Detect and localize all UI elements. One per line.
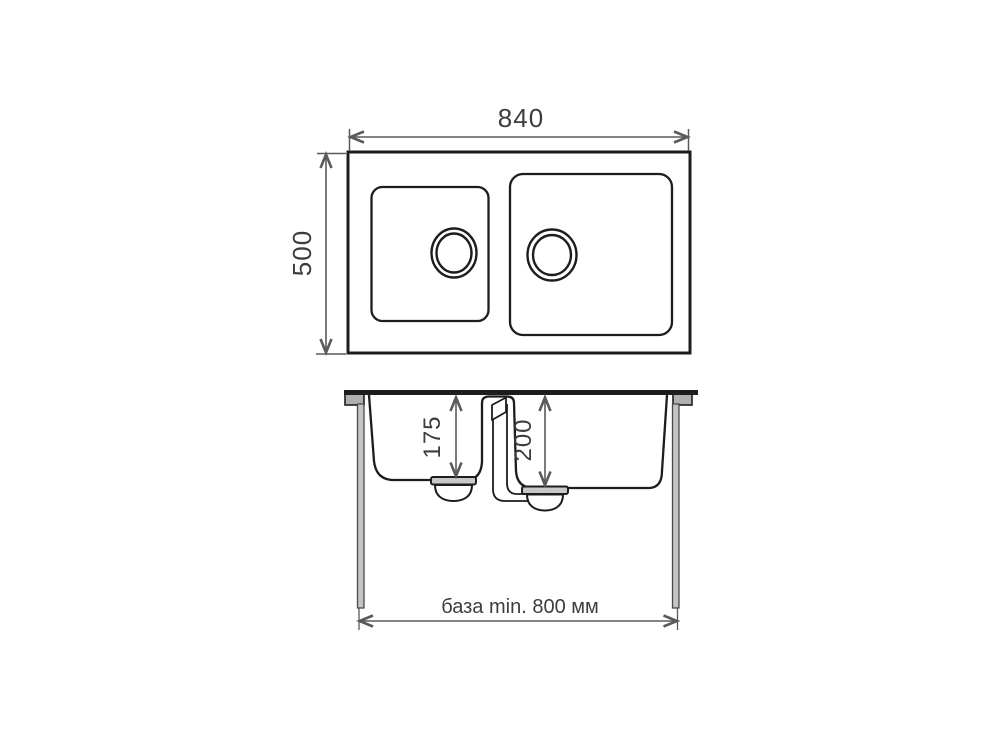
overflow-pipe-top-cap [492, 398, 506, 421]
dim-840-label: 840 [498, 103, 544, 133]
section-view: 175 200 база min. 800 мм [344, 393, 698, 631]
dim-500-label: 500 [287, 230, 317, 276]
right-drain-trap-section [527, 495, 563, 511]
left-cabinet-side [358, 404, 365, 608]
right-cabinet-side [673, 404, 680, 608]
sink-technical-drawing: 840 500 [0, 0, 1000, 750]
dimension-depth-200 [540, 398, 551, 486]
top-view [348, 152, 690, 353]
dim-base-label: база min. 800 мм [441, 596, 599, 618]
dim-175-label: 175 [419, 415, 446, 458]
right-bowl-top-view [510, 174, 672, 335]
dimension-depth-175 [451, 398, 462, 477]
left-drain-trap-section [435, 485, 472, 501]
sink-drawing-page: 840 500 [0, 0, 1000, 750]
right-clamp [673, 394, 692, 406]
dimension-height-500 [316, 154, 346, 355]
dim-200-label: 200 [510, 418, 537, 461]
left-drain-flange-section [431, 477, 476, 485]
left-clamp [345, 394, 364, 406]
